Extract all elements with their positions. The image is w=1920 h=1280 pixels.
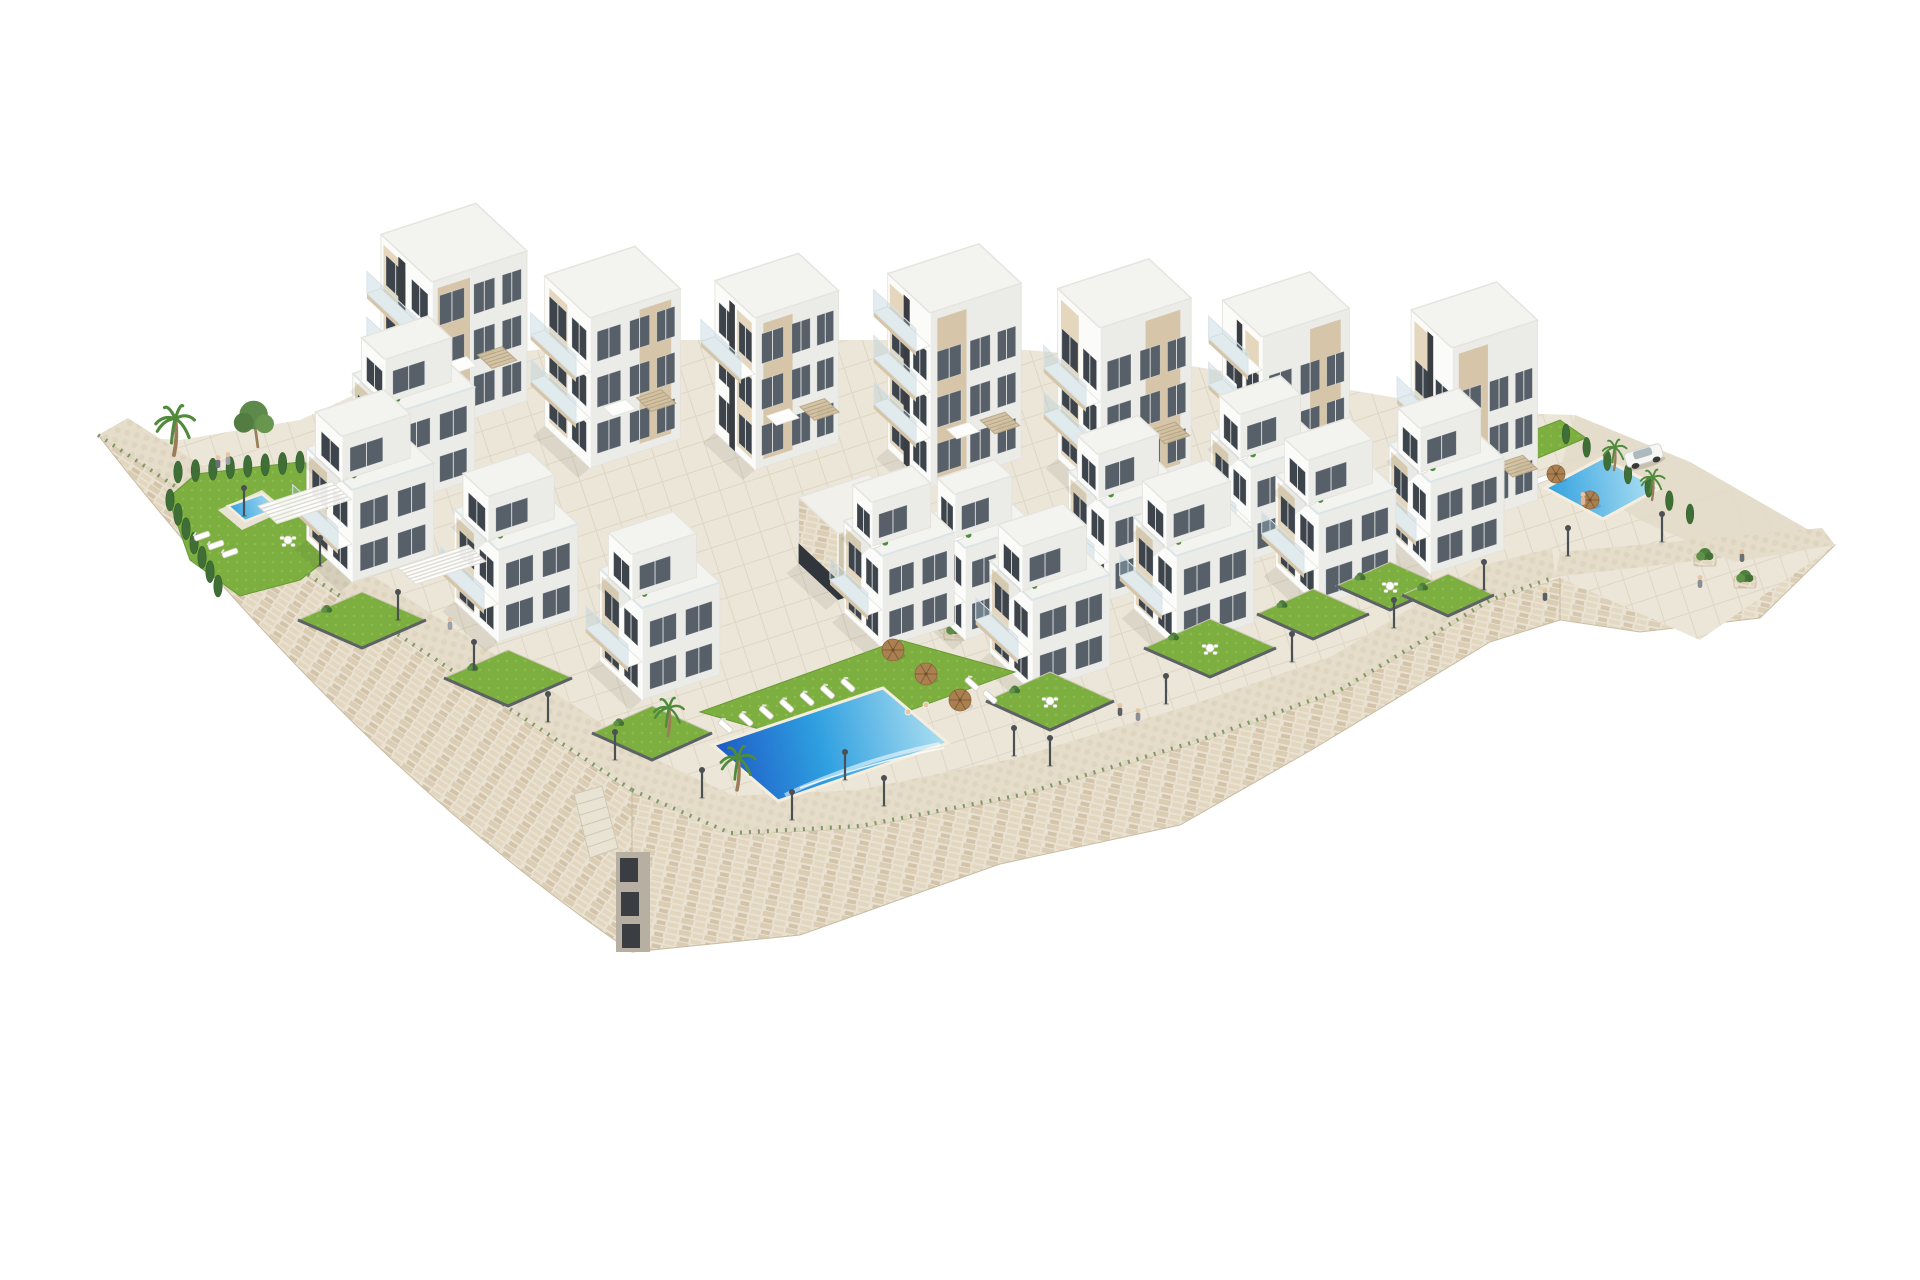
person-body	[1581, 497, 1586, 506]
garden-chair	[280, 537, 284, 540]
parasol-pole	[958, 698, 961, 701]
person-head	[1581, 492, 1586, 497]
cypress-tree	[244, 455, 252, 477]
lamp-head	[317, 535, 323, 541]
person-head	[1118, 703, 1123, 708]
person-head	[216, 455, 221, 460]
lamp-head	[1163, 673, 1169, 679]
shrub	[613, 721, 619, 727]
garden-table	[1206, 644, 1214, 652]
shrub	[1282, 603, 1287, 608]
cypress-tree	[182, 518, 190, 540]
garage-opening	[620, 858, 638, 882]
parasol-pole	[924, 672, 927, 675]
shrub	[1705, 552, 1713, 560]
garage-opening	[622, 924, 640, 948]
cypress-tree	[174, 461, 182, 483]
cypress-tree	[278, 452, 286, 474]
lamp-head	[881, 775, 887, 781]
cypress-tree	[1562, 424, 1570, 444]
garden-table	[1046, 697, 1054, 705]
person-body	[1118, 708, 1123, 717]
tower-4	[874, 244, 1022, 498]
garden-chair	[1042, 698, 1046, 701]
shrub	[1745, 574, 1753, 582]
person-body	[1740, 554, 1745, 563]
lamp-head	[789, 789, 795, 795]
cypress-tree	[296, 451, 304, 473]
lamp-head	[612, 729, 618, 735]
parasol-pole	[1588, 498, 1591, 501]
architectural-render-canvas: Aerial 3D architectural rendering of a w…	[0, 0, 1920, 1280]
shrub	[1009, 688, 1015, 694]
lamp-head	[699, 767, 705, 773]
shrub	[1015, 688, 1020, 693]
person-body	[216, 460, 221, 469]
person-head	[1698, 575, 1703, 580]
tower-2	[531, 246, 681, 478]
lamp-head	[1391, 597, 1397, 603]
pine-crown	[234, 413, 254, 433]
person-body	[1698, 580, 1703, 589]
person-body	[1136, 713, 1141, 722]
lamp-head	[1565, 525, 1571, 531]
cypress-tree	[174, 503, 182, 525]
shrub	[1696, 552, 1705, 561]
lamp-head	[1011, 725, 1017, 731]
shrub	[619, 721, 624, 726]
lamp-head	[842, 749, 848, 755]
person-head	[448, 617, 453, 622]
lamp-head	[1659, 511, 1665, 517]
garden-chair	[1214, 645, 1218, 648]
parasol-pole	[1554, 472, 1557, 475]
garden-chair	[1213, 652, 1217, 655]
person-body	[448, 622, 453, 631]
garden-chair	[1044, 705, 1048, 708]
cypress-tree	[166, 489, 174, 511]
lamp-head	[545, 691, 551, 697]
person-head	[1740, 549, 1745, 554]
parasol-pole	[891, 648, 894, 651]
swimmer	[923, 702, 929, 708]
hillside-apartment-complex-render: Aerial 3D architectural rendering of a w…	[0, 0, 1920, 1280]
person-head	[226, 452, 231, 457]
garden-table	[1386, 582, 1394, 590]
garden-chair	[1384, 590, 1388, 593]
garden-chair	[1054, 698, 1058, 701]
lamp-head	[241, 485, 247, 491]
garden-chair	[291, 544, 295, 547]
cypress-tree	[198, 546, 206, 568]
garden-chair	[1053, 705, 1057, 708]
person-head	[1136, 708, 1141, 713]
person-body	[1543, 593, 1548, 602]
cypress-tree	[261, 454, 269, 476]
person-head	[1543, 588, 1548, 593]
shrub	[1168, 635, 1174, 641]
cypress-tree	[1686, 504, 1694, 524]
cypress-tree	[191, 460, 199, 482]
shrub	[1174, 635, 1179, 640]
shrub	[327, 608, 332, 613]
cypress-tree	[1583, 437, 1591, 457]
lamp-head	[1289, 631, 1295, 637]
garden-chair	[292, 537, 296, 540]
lamp-head	[471, 639, 477, 645]
lamp-head	[1481, 559, 1487, 565]
garden-chair	[1204, 652, 1208, 655]
tower-3	[701, 253, 839, 480]
garden-table	[284, 536, 292, 544]
cypress-tree	[214, 575, 222, 597]
pine-crown	[255, 414, 274, 433]
garage-opening	[621, 892, 639, 916]
lamp-head	[395, 589, 401, 595]
shrub	[1423, 585, 1428, 590]
shrub	[1736, 574, 1745, 583]
garden-chair	[1382, 583, 1386, 586]
garden-chair	[282, 544, 286, 547]
cypress-tree	[206, 561, 214, 583]
garden-chair	[1202, 645, 1206, 648]
shrub	[1355, 575, 1361, 581]
cypress-tree	[1666, 491, 1674, 511]
shrub	[1361, 575, 1366, 580]
lamp-head	[1047, 735, 1053, 741]
shrub	[1277, 603, 1283, 609]
garden-chair	[1394, 583, 1398, 586]
swimmer	[905, 709, 911, 715]
shrub	[321, 607, 327, 613]
shrub	[1417, 585, 1423, 591]
person-body	[226, 457, 231, 466]
garden-chair	[1393, 590, 1397, 593]
